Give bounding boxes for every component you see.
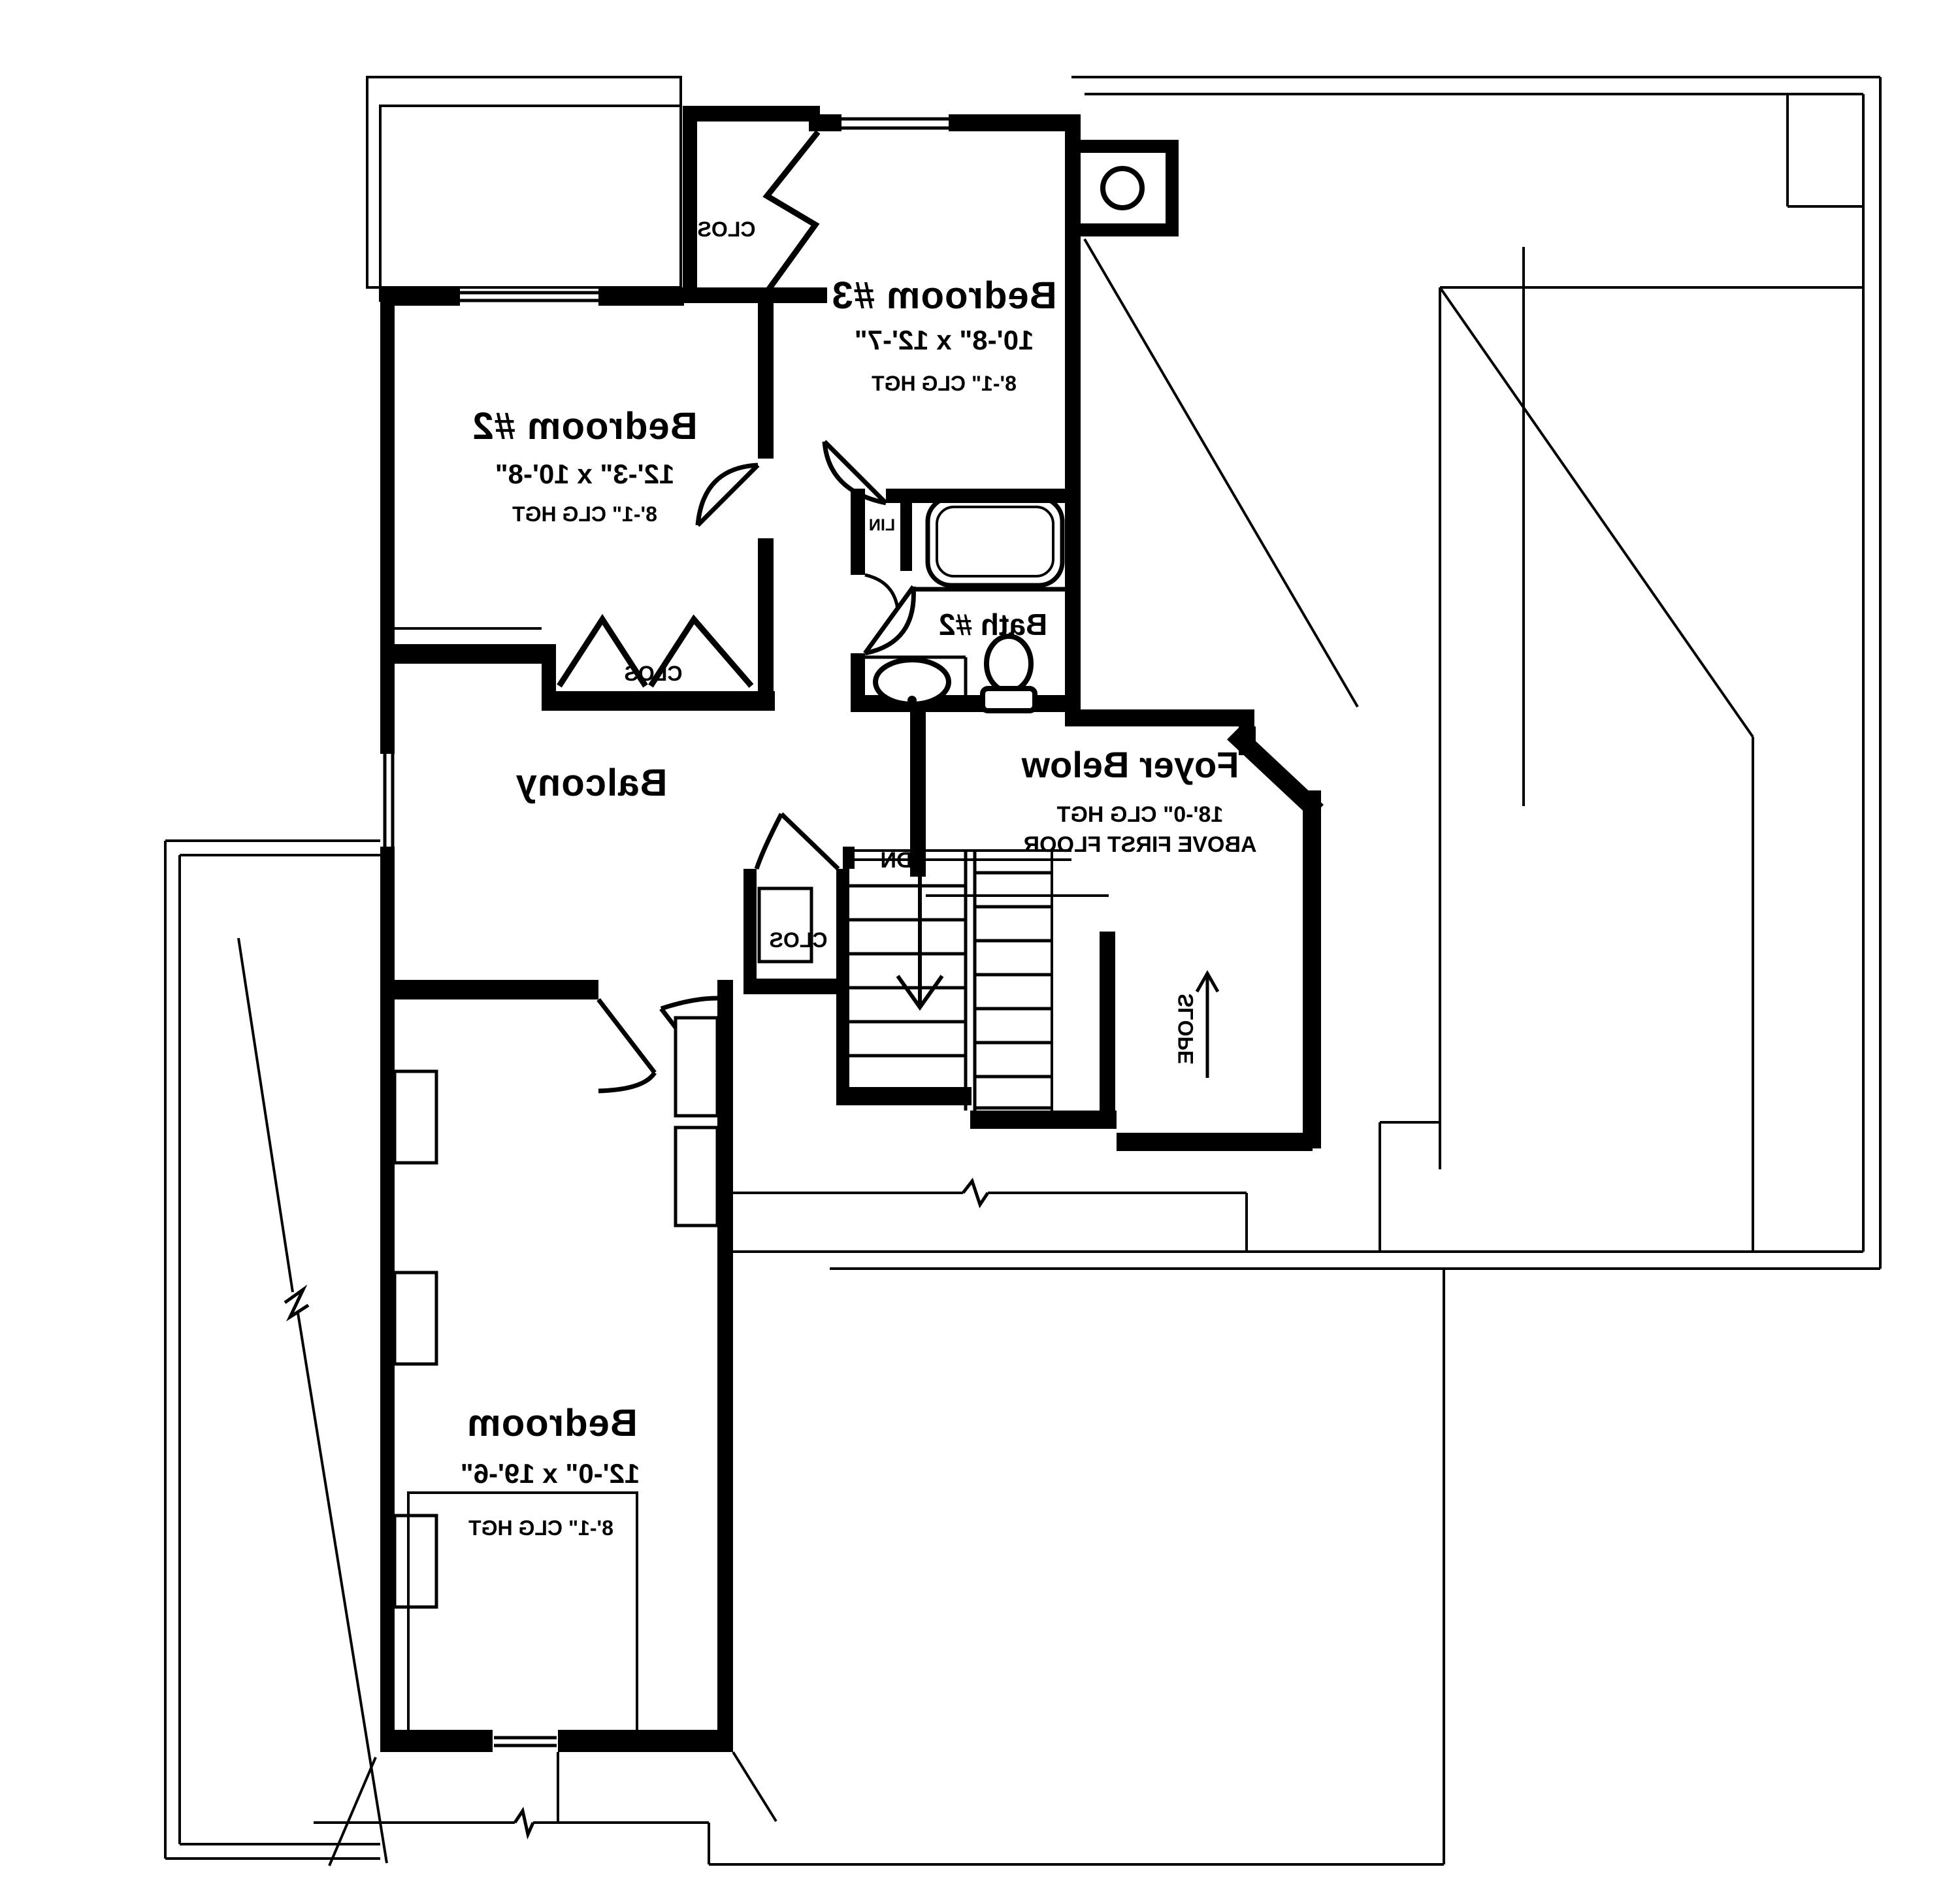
door-bath2 (865, 587, 913, 653)
label-closet-stairs: CLOS (770, 928, 828, 952)
room-label-master-dims: 12'-0" x 19'-6" (461, 1458, 640, 1489)
slope-annotation: SLOPE (1174, 973, 1218, 1078)
floor-plan-svg: Bedroom #3 10'-8" x 12'-7" 8'-1" CLG HGT… (0, 0, 1960, 1884)
floor-plan: Bedroom #3 10'-8" x 12'-7" 8'-1" CLG HGT… (0, 0, 1960, 1884)
room-label-foyer-ceiling: 18'-0" CLG HGT (1056, 802, 1223, 827)
door-master-left-leaf (598, 999, 655, 1091)
label-closet-top: CLOS (698, 218, 756, 241)
door-stair-closet (757, 814, 838, 869)
break-mark (285, 1290, 308, 1317)
room-label-balcony-name: Balcony (515, 762, 668, 804)
door-linen (865, 575, 898, 609)
room-label-master-name: Bedroom (466, 1402, 638, 1444)
break-mark (515, 1811, 533, 1834)
label-closet-mid: CLOS (625, 662, 683, 685)
labels-layer: Bedroom #3 10'-8" x 12'-7" 8'-1" CLG HGT… (461, 218, 1257, 1540)
window-balcony-left (385, 754, 393, 847)
room-label-foyer-name: Foyer Below (1021, 744, 1239, 785)
label-slope: SLOPE (1174, 994, 1198, 1064)
door-bedroom3 (825, 442, 886, 503)
walls-layer (380, 106, 1324, 1752)
window-bedroom2-top (460, 293, 598, 300)
window-master-bottom (494, 1738, 557, 1746)
break-mark (963, 1181, 988, 1205)
windows-layer (385, 119, 949, 1746)
room-label-foyer-note: ABOVE FIRST FLOOR (1024, 832, 1257, 857)
chimney-flue-icon (1103, 169, 1142, 208)
door-bedroom2 (698, 465, 758, 525)
bifold-door-closet-top (764, 132, 818, 295)
room-label-bath2-name: Bath #2 (939, 608, 1047, 642)
room-label-bedroom3-name: Bedroom #3 (831, 274, 1056, 317)
room-label-bedroom3-ceiling: 8'-1" CLG HGT (872, 372, 1017, 395)
label-linen: LIN (869, 516, 895, 534)
room-label-bedroom3-dims: 10'-8" x 12'-7" (855, 325, 1034, 355)
room-label-master-ceiling: 8'-1" CLG HGT (468, 1516, 613, 1540)
bathtub-icon (912, 498, 1065, 589)
label-down: DN (880, 848, 912, 873)
room-label-bedroom2-dims: 12'-3" x 10'-8" (495, 459, 675, 489)
room-label-bedroom2-ceiling: 8'-1" CLG HGT (512, 502, 657, 526)
down-arrow (898, 810, 942, 1007)
room-label-bedroom2-name: Bedroom #2 (472, 405, 697, 447)
toilet-icon (983, 636, 1035, 711)
window-bedroom3 (841, 119, 949, 128)
